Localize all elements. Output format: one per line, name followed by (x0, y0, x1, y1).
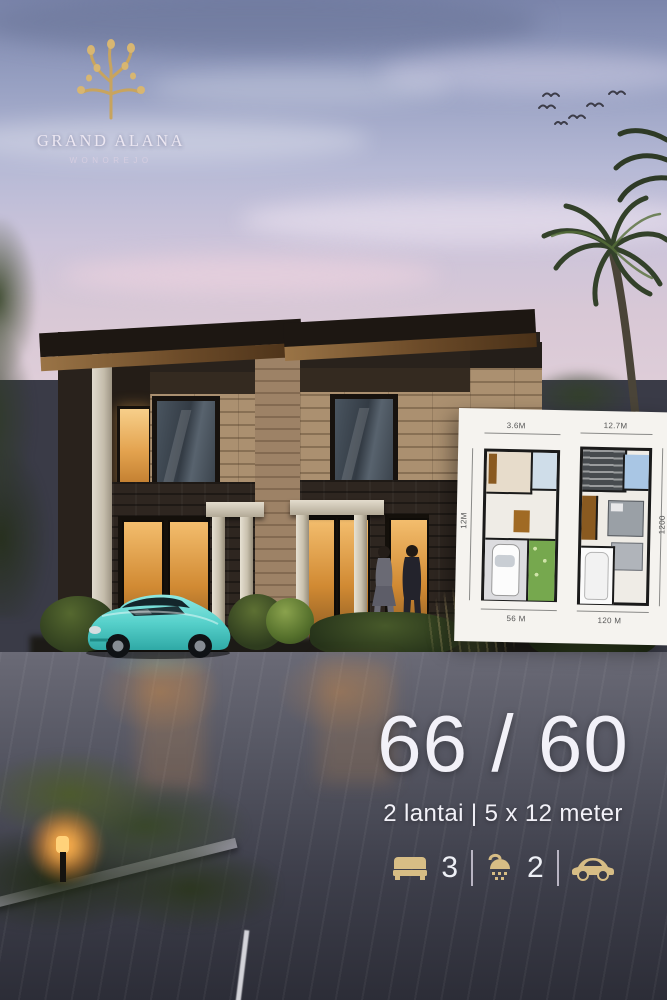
car-topview (491, 544, 520, 597)
dim-label: 1200 (657, 515, 666, 534)
wardrobe (581, 496, 598, 540)
feature-row: 3 2 (352, 850, 654, 886)
garden-patch (528, 539, 555, 602)
bedroom-count: 3 (441, 851, 458, 885)
area-headline: 66 / 60 (352, 704, 654, 784)
cloud (60, 256, 440, 294)
facade-band (150, 372, 255, 394)
facade-band (300, 368, 470, 392)
brand-subtitle: WONOREJO (25, 156, 197, 165)
lit-window (117, 406, 152, 490)
topiary-bush (266, 598, 314, 644)
wood-facade-far-right (470, 368, 542, 412)
dim-label: 3.6M (507, 421, 526, 430)
garden-lamp-post (60, 852, 66, 882)
brand-name: GRAND ALANA (25, 131, 197, 151)
teal-sports-car (78, 580, 238, 660)
divider (471, 850, 473, 886)
garage (484, 538, 529, 601)
car-outline (584, 552, 609, 600)
floorplan-level-1 (481, 449, 560, 603)
bed (611, 542, 644, 571)
dim-label: 56 M (507, 614, 526, 623)
bathroom (622, 454, 649, 491)
specs-block: 66 / 60 2 lantai | 5 x 12 meter 3 2 (352, 704, 654, 886)
divider (557, 850, 559, 886)
car-icon (572, 855, 614, 881)
left-foliage (0, 218, 66, 618)
tree-icon (69, 38, 153, 122)
dim-label: 12M (459, 512, 468, 529)
floorplan-card: 3.6M 12.7M 12M 1200 56 M 120 M (454, 408, 667, 645)
specs-subline: 2 lantai | 5 x 12 meter (352, 800, 654, 828)
bathroom (530, 453, 557, 492)
bed-icon (392, 855, 428, 881)
bathroom-count: 2 (527, 851, 544, 885)
porch-beam-left (206, 502, 264, 517)
property-poster: 3.6M 12.7M 12M 1200 56 M 120 M (0, 0, 667, 1000)
table (513, 510, 529, 532)
carport-below (580, 546, 615, 605)
bed (607, 500, 644, 537)
dim-label: 120 M (597, 616, 621, 625)
floorplan-level-2 (577, 447, 652, 606)
brand-logo: GRAND ALANA WONOREJO (25, 38, 197, 178)
garden-lamp-icon (56, 836, 69, 853)
roof-void (582, 450, 627, 493)
shower-icon (486, 853, 514, 883)
bedroom (486, 452, 533, 495)
porch-beam-right (290, 500, 384, 515)
palm-tree (520, 100, 667, 450)
dim-label: 12.7M (604, 421, 628, 430)
